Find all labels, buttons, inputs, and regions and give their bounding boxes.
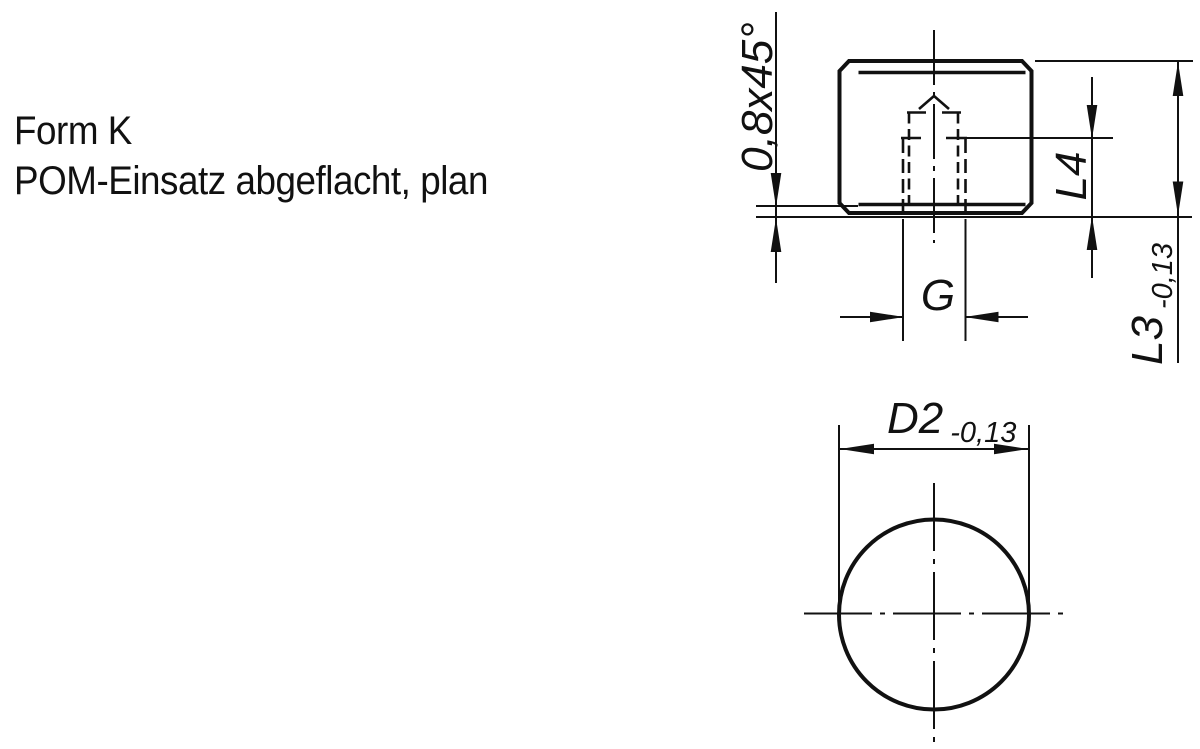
arrowhead-length-bottom (1173, 182, 1184, 216)
page: Form K POM-Einsatz abgeflacht, plan (0, 0, 1200, 749)
dimension-thread: G (840, 271, 1028, 322)
arrowhead-chamfer-bottom (771, 218, 782, 252)
dim-label-insert-depth: L4 (1047, 152, 1096, 201)
dimension-diameter: D2-0,13 (839, 394, 1029, 454)
arrowhead-chamfer-top (771, 173, 782, 207)
arrowhead-insert-depth-bottom (1087, 216, 1098, 250)
arrowhead-diameter-left (840, 444, 874, 455)
dim-label-chamfer: 0,8x45° (733, 22, 782, 172)
arrowhead-insert-depth-top (1087, 105, 1098, 139)
dim-label-thread: G (921, 271, 955, 320)
dimension-chamfer: 0,8x45° (733, 12, 782, 283)
dim-label-length: L3-0,13 (1123, 243, 1179, 365)
drill-point-right (934, 96, 949, 109)
dimension-insert-depth: L4 (1047, 77, 1097, 278)
arrowhead-thread-right (965, 312, 999, 323)
arrowhead-thread-left (870, 312, 904, 323)
bottom-view: D2-0,13 (804, 394, 1065, 748)
front-view: 0,8x45° G L4 L3-0,13 (733, 12, 1193, 365)
dimension-length: L3-0,13 (1123, 61, 1183, 365)
technical-drawing: 0,8x45° G L4 L3-0,13 (0, 0, 1200, 749)
drill-point-left (919, 96, 934, 109)
dim-label-diameter: D2-0,13 (887, 394, 1016, 449)
arrowhead-length-top (1173, 62, 1184, 96)
